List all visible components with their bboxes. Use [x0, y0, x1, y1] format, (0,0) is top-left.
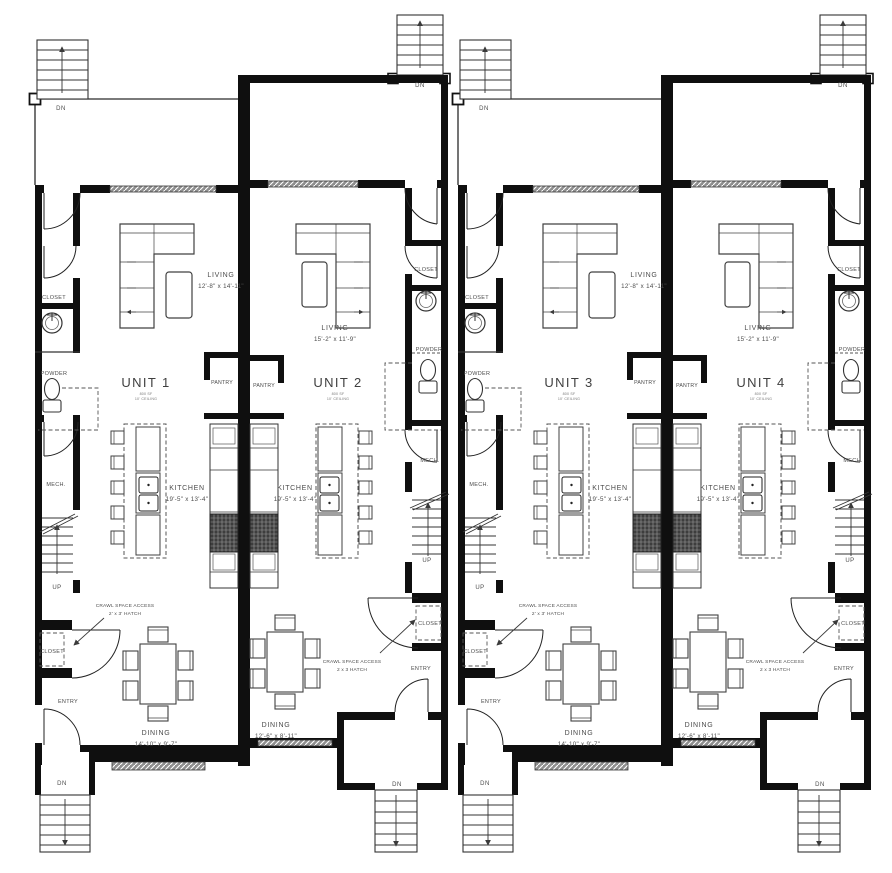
pantry-label: PANTRY [253, 383, 275, 389]
unit-a-crawl-arrow [74, 618, 104, 645]
unit-b-crawl-arrow [380, 620, 415, 653]
mech-label: MECH. [420, 458, 439, 464]
closet-lower-label: CLOSET [463, 649, 487, 655]
stair-dn-label: DN [415, 83, 425, 89]
unit-name: UNIT 1 [121, 375, 170, 390]
entry-door [395, 679, 428, 712]
unit-a-kitchen-island [111, 424, 166, 558]
unit-ceiling: 10' CEILING [327, 397, 349, 401]
dining-dims: 14'-10" x 9'-7" [135, 741, 178, 748]
stair-dn-label: DN [838, 83, 848, 89]
dining-table [140, 644, 176, 704]
unit-area: 800 SF [332, 392, 345, 396]
closet-door [44, 246, 76, 278]
unit-b-bathroom-fixtures [416, 291, 437, 393]
mech-label: MECH. [469, 482, 488, 488]
unit-pair-geometry [30, 15, 451, 852]
kitchen-dims: 19'-5" x 13'-4" [274, 496, 317, 503]
entry-label: ENTRY [834, 666, 854, 672]
unit-a-kitchen-counter [210, 424, 238, 588]
unit-b-ottoman [302, 262, 327, 307]
kitchen-label: KITCHEN [277, 485, 313, 492]
dining-dims: 12'-6" x 8'-11" [255, 733, 297, 740]
stair-dn-label: DN [56, 106, 66, 112]
powder-sink [42, 313, 62, 333]
range [250, 514, 278, 552]
powder-label: POWDER [464, 371, 491, 377]
stair-up-label: UP [422, 558, 431, 564]
unit-ceiling: 10' CEILING [750, 397, 772, 401]
range [210, 514, 238, 552]
unit-b-deck [388, 15, 450, 84]
unit-name: UNIT 4 [736, 375, 785, 390]
window-band [258, 740, 332, 746]
stair-dn-label: DN [815, 782, 825, 788]
stair-up-label: UP [475, 585, 484, 591]
living-label: LIVING [321, 325, 348, 332]
kitchen-dims: 19'-5" x 13'-4" [166, 496, 209, 503]
unit-pair-geometry-mirror [453, 15, 874, 852]
window-band [110, 186, 216, 192]
powder-label: POWDER [839, 347, 866, 353]
unit-a-interior-stair [40, 514, 78, 574]
crawl-note-line2: 2' x 3' HATCH [109, 611, 142, 617]
unit-a-doors [44, 193, 120, 745]
entry-label: ENTRY [411, 666, 431, 672]
stair-up-label: UP [52, 585, 61, 591]
floor-plan-page: DN CLOSET POWDER LIVING 12'-8" x 14'-11"… [0, 0, 892, 873]
dining-label: DINING [565, 730, 594, 737]
closet-door [405, 246, 437, 278]
stair-up-label: UP [845, 558, 854, 564]
living-dims: 12'-8" x 14'-11" [198, 283, 244, 290]
unit-ceiling: 10' CEILING [558, 397, 580, 401]
closet-label: CLOSET [414, 267, 438, 273]
entry-door [44, 709, 80, 745]
unit-a-porch-stair [40, 795, 90, 852]
crawl-note-line2: 2 x 3 HATCH [337, 667, 367, 673]
crawl-note-line2: 2 x 3 HATCH [760, 667, 790, 673]
living-dims: 12'-8" x 14'-11" [621, 283, 667, 290]
crawl-note-line2: 2' x 3' HATCH [532, 611, 565, 617]
dining-label: DINING [142, 730, 171, 737]
unit-b-sofa [296, 224, 370, 328]
unit-a-dining-set [123, 627, 193, 721]
dining-label: DINING [262, 722, 291, 729]
living-dims: 15'-2" x 11'-9" [737, 336, 779, 343]
mech-door [44, 422, 78, 456]
island-stools [359, 431, 372, 544]
island-stools [111, 431, 124, 544]
dining-table [267, 632, 303, 692]
dining-dims: 12'-6" x 8'-11" [678, 733, 720, 740]
closet-lower-label: CLOSET [40, 649, 64, 655]
living-label: LIVING [207, 272, 234, 279]
stair-dn-label: DN [392, 782, 402, 788]
entry-label: ENTRY [58, 699, 78, 705]
kitchen-label: KITCHEN [592, 485, 628, 492]
powder-label: POWDER [416, 347, 443, 353]
mech-label: MECH. [843, 458, 862, 464]
pantry-label: PANTRY [634, 380, 656, 386]
unit-b-porch-stair [375, 790, 417, 852]
toilet [43, 379, 61, 413]
stair-dn-label: DN [57, 781, 67, 787]
crawl-note-line1: CRAWL SPACE ACCESS [96, 603, 155, 609]
crawl-note-line1: CRAWL SPACE ACCESS [746, 659, 805, 665]
hall-closet-door [72, 630, 120, 678]
unit-area: 800 SF [140, 392, 153, 396]
closet-label: CLOSET [837, 267, 861, 273]
pantry-label: PANTRY [211, 380, 233, 386]
window-band [112, 762, 205, 770]
stair-dn-label: DN [479, 106, 489, 112]
closet-lower-label: CLOSET [841, 621, 865, 627]
unit-area: 800 SF [563, 392, 576, 396]
unit-a-bathroom-fixtures [42, 313, 62, 412]
unit-ceiling: 10' CEILING [135, 397, 157, 401]
unit-b-dining-set [250, 615, 320, 709]
powder-label: POWDER [41, 371, 68, 377]
unit-name: UNIT 3 [544, 375, 593, 390]
living-dims: 15'-2" x 11'-9" [314, 336, 356, 343]
kitchen-label: KITCHEN [700, 485, 736, 492]
kitchen-label: KITCHEN [169, 485, 205, 492]
living-label: LIVING [744, 325, 771, 332]
kitchen-dims: 19'-5" x 13'-4" [697, 496, 740, 503]
crawl-note-line1: CRAWL SPACE ACCESS [519, 603, 578, 609]
unit-a-deck [30, 40, 239, 185]
crawl-note-line1: CRAWL SPACE ACCESS [323, 659, 382, 665]
unit-name: UNIT 2 [313, 375, 362, 390]
entry-label: ENTRY [481, 699, 501, 705]
dining-label: DINING [685, 722, 714, 729]
closet-label: CLOSET [42, 295, 66, 301]
pantry-label: PANTRY [676, 383, 698, 389]
deck-stair [37, 40, 88, 99]
dining-dims: 14'-10" x 9'-7" [558, 741, 601, 748]
unit-a-ottoman [166, 272, 192, 318]
closet-label: CLOSET [465, 295, 489, 301]
closet-lower-label: CLOSET [418, 621, 442, 627]
unit-b-kitchen-island [316, 424, 372, 558]
stair-dn-label: DN [480, 781, 490, 787]
unit-b-kitchen-counter [250, 424, 278, 588]
unit-a-sofa [120, 224, 194, 328]
floor-plan-drawing: DN CLOSET POWDER LIVING 12'-8" x 14'-11"… [0, 0, 892, 873]
kitchen-dims: 19'-5" x 13'-4" [589, 496, 632, 503]
toilet [419, 360, 437, 394]
mech-label: MECH. [46, 482, 65, 488]
window-band [268, 181, 358, 187]
unit-area: 800 SF [755, 392, 768, 396]
living-label: LIVING [630, 272, 657, 279]
powder-sink [416, 291, 436, 311]
deck-stair [397, 15, 443, 75]
